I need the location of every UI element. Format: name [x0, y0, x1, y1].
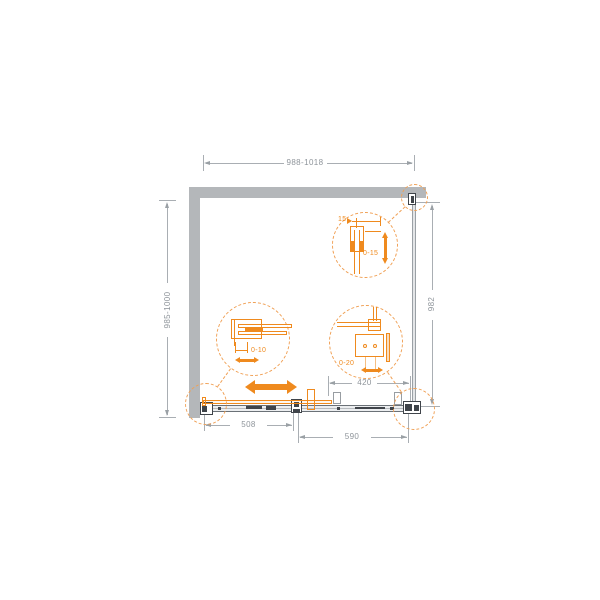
dim-left-label: 985-1000	[163, 280, 173, 340]
detail3-screw-b	[373, 344, 377, 348]
dim-left-arrow-bottom	[165, 410, 169, 416]
track-roller-c	[266, 406, 276, 410]
leader-door-overlap	[217, 368, 231, 386]
detail2-ext-tick-a	[235, 342, 236, 353]
mount-adjust-arrow-head-left	[361, 367, 366, 373]
dim-right-line-b	[432, 320, 433, 403]
detail1-glass-line-a	[354, 230, 355, 274]
detail2-range-label: 0-10	[251, 347, 266, 355]
detail2-overlap-fill	[245, 328, 263, 332]
dim-top-arrow-right	[407, 161, 413, 165]
detail1-dim-tick-c	[365, 231, 381, 232]
track-roller-e	[355, 407, 385, 409]
slide-direction-arrow	[255, 384, 287, 390]
dim-top-line-a	[206, 163, 284, 164]
dim-left-tick-bottom	[159, 417, 176, 418]
dim-right-line-a	[432, 206, 433, 290]
right-glass-panel	[412, 198, 416, 405]
height-adjust-arrow-head-up	[382, 232, 388, 238]
dim-420-label: 420	[352, 378, 377, 388]
dim-508-ext-right	[293, 413, 294, 431]
dim-left-line-b	[167, 337, 168, 415]
detail1-width-label: 15	[338, 216, 346, 224]
detail3-range-label: 0-20	[339, 360, 354, 368]
detail2-dim-line	[236, 350, 247, 351]
callout-source-track-left	[185, 383, 227, 425]
dim-590-label: 590	[333, 432, 371, 442]
overlap-adjust-arrow	[240, 359, 254, 362]
detail2-ext-tick-b	[247, 342, 248, 353]
height-adjust-arrow-head-down	[382, 258, 388, 264]
detail-circle-door-overlap	[216, 302, 290, 376]
detail3-screw-a	[363, 344, 367, 348]
detail3-drop-line-b	[375, 357, 376, 369]
detail1-gasket-left	[351, 241, 354, 252]
dim-right-arrow-top	[430, 204, 434, 210]
center-stopper-base	[293, 409, 300, 412]
detail1-dim-tick-b	[380, 217, 381, 226]
dim-top-tick-right	[414, 155, 415, 171]
detail3-carriage-body	[355, 334, 384, 357]
dim-590-arrow-left	[299, 435, 305, 439]
dim-590-arrow-right	[401, 435, 407, 439]
detail1-range-label: 0-15	[363, 250, 378, 258]
enclosure-plan-drawing: 988-1018 985-1000 982 420 508 590	[0, 0, 600, 600]
callout-source-track-right	[393, 388, 435, 430]
mount-adjust-arrow-head-right	[378, 367, 383, 373]
overlap-adjust-arrow-head-left	[235, 357, 240, 363]
detail3-glass-upper	[373, 307, 377, 321]
slide-arrow-head-right	[287, 380, 297, 394]
detail1-glass-line-b	[359, 230, 360, 274]
dim-left-line-a	[167, 204, 168, 283]
dim-right-label: 982	[427, 284, 437, 324]
leader-wall-profile	[388, 206, 406, 222]
dim-420-ext-left	[328, 376, 329, 396]
detail3-mount-bar	[386, 333, 390, 362]
dim-420-arrow-left	[329, 381, 335, 385]
dim-508-label: 508	[230, 420, 267, 430]
dim-left-tick-top	[159, 200, 176, 201]
track-roller-d	[337, 407, 340, 410]
sliding-door-handle-post	[307, 389, 315, 410]
top-wall	[189, 187, 426, 198]
track-roller-b	[246, 406, 262, 409]
height-adjust-arrow	[384, 238, 387, 258]
dim-508-arrow-right	[286, 423, 292, 427]
dim-420-arrow-right	[403, 381, 409, 385]
dim-left-arrow-top	[165, 202, 169, 208]
dim-top-arrow-left	[204, 161, 210, 165]
mount-adjust-arrow	[366, 369, 378, 372]
slide-arrow-head-left	[245, 380, 255, 394]
dim-top-label: 988-1018	[283, 158, 327, 168]
fixed-panel-post-left	[333, 392, 341, 404]
dim-top-line-b	[327, 163, 412, 164]
overlap-adjust-arrow-head-right	[254, 357, 259, 363]
